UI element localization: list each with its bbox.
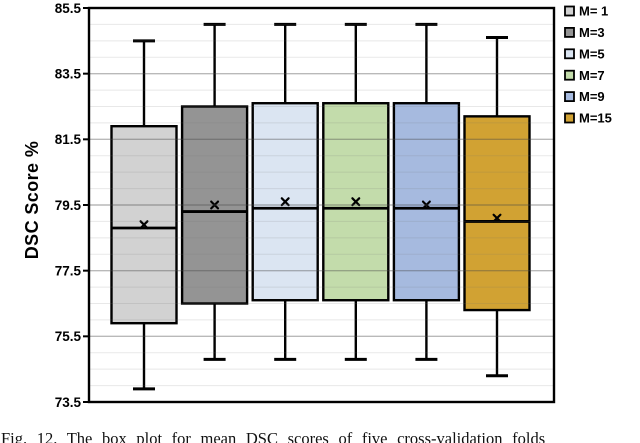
legend-marker-icon — [565, 28, 574, 37]
legend-item-m9: M=9 — [565, 89, 605, 104]
box-group-m15 — [465, 38, 530, 376]
iqr-box — [465, 116, 530, 310]
legend: M= 1M=3M=5M=7M=9M=15 — [565, 4, 612, 126]
box-group-m3 — [182, 24, 247, 359]
y-axis-title: DSC Score % — [22, 141, 42, 259]
legend-item-m15: M=15 — [565, 111, 612, 126]
legend-item-m7: M=7 — [565, 68, 605, 83]
legend-marker-icon — [565, 7, 574, 16]
y-tick-label: 73.5 — [55, 395, 82, 410]
legend-marker-icon — [565, 114, 574, 123]
legend-label: M=7 — [579, 68, 605, 83]
y-tick-label: 81.5 — [55, 132, 82, 147]
legend-marker-icon — [565, 49, 574, 58]
legend-item-m5: M=5 — [565, 46, 605, 61]
box-group-m7 — [323, 24, 388, 359]
legend-item-m1: M= 1 — [565, 4, 608, 19]
figure-caption: Fig. 12. The box plot for mean DSC score… — [1, 429, 640, 443]
y-tick-label: 85.5 — [55, 1, 82, 16]
y-tick-label: 83.5 — [55, 66, 82, 81]
legend-label: M= 1 — [579, 4, 608, 19]
box-group-m9 — [394, 24, 459, 359]
legend-label: M=15 — [579, 111, 612, 126]
box-group-m5 — [253, 24, 318, 359]
legend-label: M=9 — [579, 89, 605, 104]
y-tick-label: 75.5 — [55, 329, 82, 344]
boxplot-chart: 85.583.581.579.577.575.573.5DSC Score %M… — [0, 0, 640, 426]
legend-label: M=5 — [579, 46, 605, 61]
legend-label: M=3 — [579, 25, 605, 40]
legend-item-m3: M=3 — [565, 25, 605, 40]
figure-container: 85.583.581.579.577.575.573.5DSC Score %M… — [0, 0, 640, 443]
y-tick-label: 77.5 — [55, 263, 82, 278]
y-tick-label: 79.5 — [55, 198, 82, 213]
legend-marker-icon — [565, 92, 574, 101]
legend-marker-icon — [565, 71, 574, 80]
